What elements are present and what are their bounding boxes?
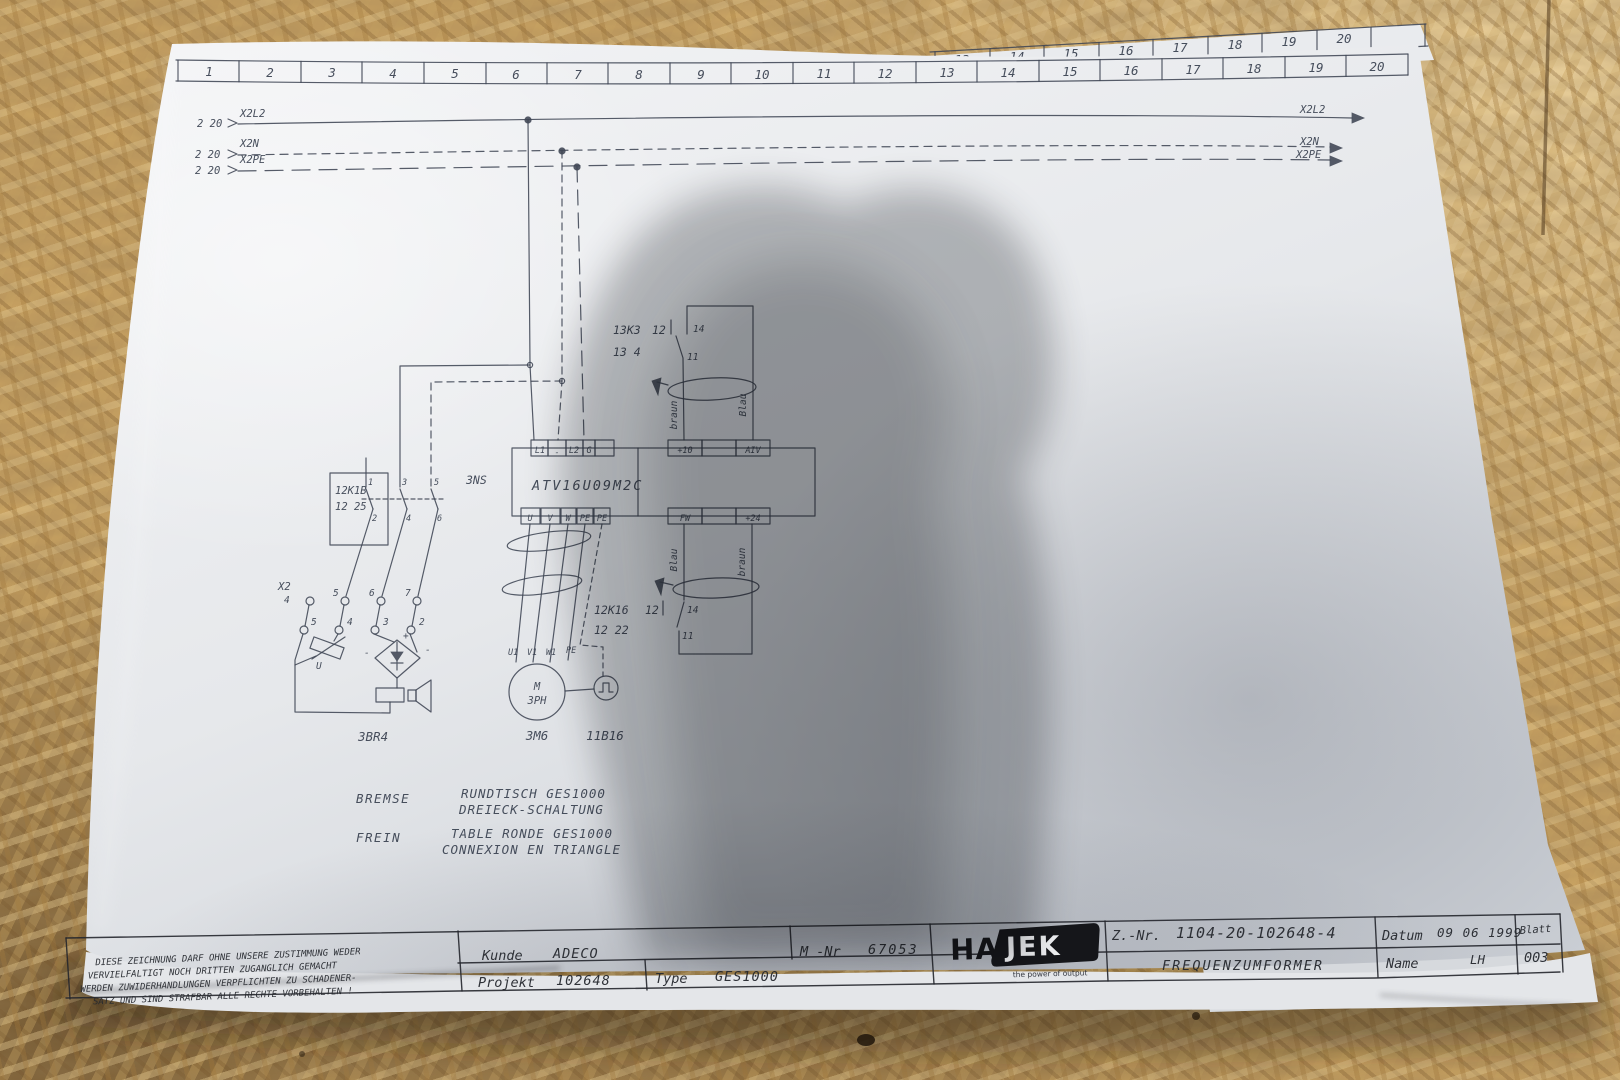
bus-ref: 2 20 <box>197 118 222 130</box>
ruler-cell: 14 <box>1000 65 1015 80</box>
ruler-cell: 17 <box>1185 62 1201 77</box>
back-ruler-cell: 17 <box>1172 40 1188 55</box>
bus-label-right: X2L2 <box>1299 104 1325 116</box>
ruler-cell: 15 <box>1062 64 1077 79</box>
bus-label: X2L2 <box>239 108 265 120</box>
ruler-cell: 11 <box>816 66 831 81</box>
ruler-cell: 2 <box>266 65 274 80</box>
strip-pin: 4 <box>347 617 353 628</box>
ruler-cell: 8 <box>635 67 643 82</box>
caption-de-label: BREMSE <box>356 791 410 806</box>
datum-label: Datum <box>1381 928 1423 944</box>
caption-de-line2: DREIECK-SCHALTUNG <box>458 802 604 817</box>
bus-label-right: X2PE <box>1295 149 1322 161</box>
type-label: Type <box>655 971 688 987</box>
hand-shadow <box>561 186 1055 962</box>
plus-sign: + <box>403 631 409 642</box>
contactor-id: 12K1B <box>335 485 367 497</box>
motor-m: M <box>533 681 541 693</box>
blatt-label: Blatt <box>1519 923 1551 937</box>
caption-fr-line2: CONNEXION EN TRIANGLE <box>442 842 621 857</box>
strip-pin: 5 <box>311 617 317 628</box>
photo-scene: 13 14 15 16 17 18 19 20 1 2 3 4 5 6 7 8 … <box>0 0 1620 1080</box>
datum-value: 09 06 1999 <box>1437 925 1522 940</box>
ruler-cell: 6 <box>512 67 520 82</box>
pin-label: 2 <box>372 514 377 524</box>
motor-id: 3M6 <box>525 728 549 743</box>
drawing-title: FREQUENZUMFORMER <box>1162 958 1324 974</box>
strip-pin: 7 <box>405 588 411 599</box>
pin-label: 5 <box>434 478 439 488</box>
minus-sign: - <box>364 648 370 659</box>
ruler-cell: 13 <box>939 65 954 80</box>
minus-sign: - <box>425 645 431 656</box>
projekt-label: Projekt <box>478 975 535 991</box>
strip-pin: 2 <box>419 617 425 628</box>
kunde-label: Kunde <box>481 948 523 964</box>
bus-label-right: X2N <box>1299 136 1320 148</box>
ruler-cell: 19 <box>1308 60 1323 75</box>
motor-phases: 3PH <box>527 695 548 707</box>
drive-id: 3NS <box>465 473 487 487</box>
back-ruler-cell: 18 <box>1227 37 1242 52</box>
back-ruler-cell: 16 <box>1118 43 1133 58</box>
strip-pin: 5 <box>333 588 339 599</box>
caption-fr-label: FREIN <box>356 830 401 845</box>
kunde-value: ADECO <box>552 946 599 962</box>
bus-ref: 2 20 <box>195 149 220 161</box>
brake-label: 3BR4 <box>357 729 388 744</box>
varistor-label: U <box>316 661 322 672</box>
contactor-xref: 12 25 <box>335 501 367 513</box>
motor-terminal: V1 <box>527 648 537 658</box>
name-value: LH <box>1470 952 1486 967</box>
znr-value: 1104-20-102648-4 <box>1176 924 1337 942</box>
pin-label: 3 <box>401 478 407 488</box>
back-ruler-cell: 20 <box>1336 31 1351 46</box>
ruler-cell: 12 <box>877 66 892 81</box>
ruler-cell: 5 <box>451 66 459 81</box>
ruler-cell: 4 <box>389 66 397 81</box>
ruler-cell: 3 <box>327 65 336 80</box>
ruler-cell: 10 <box>754 67 769 82</box>
terminal-label: - <box>554 448 559 458</box>
terminal-label: V <box>547 514 553 524</box>
terminal-label: U <box>527 514 533 524</box>
ruler-cell: 1 <box>205 64 213 79</box>
terminal-label: L1 <box>535 446 545 456</box>
ruler-cell: 16 <box>1123 63 1138 78</box>
pin-label: 6 <box>437 514 442 524</box>
strip-pin: 4 <box>284 595 290 606</box>
bus-label: X2N <box>239 138 260 150</box>
ruler-cell: 20 <box>1369 59 1384 74</box>
strip-id: X2 <box>277 581 291 593</box>
back-ruler-cell: 19 <box>1281 34 1296 49</box>
caption-de-line1: RUNDTISCH GES1000 <box>461 786 606 801</box>
pin-label: 1 <box>368 478 373 488</box>
blatt-value: 003 <box>1524 950 1548 966</box>
strip-pin: 6 <box>369 588 375 599</box>
type-value: GES1000 <box>715 969 779 985</box>
projekt-value: 102648 <box>556 973 611 989</box>
motor-terminal: U1 <box>508 648 518 658</box>
bus-label: X2PE <box>239 154 266 166</box>
strip-pin: 3 <box>382 617 389 628</box>
motor-terminal: W1 <box>546 648 556 658</box>
znr-label: Z.-Nr. <box>1111 928 1161 944</box>
ruler-cell: 18 <box>1246 61 1261 76</box>
ruler-cell: 9 <box>697 67 705 82</box>
pin-label: 4 <box>406 514 411 524</box>
bus-ref: 2 20 <box>195 165 220 177</box>
ruler-cell: 7 <box>574 67 582 82</box>
name-label: Name <box>1385 956 1419 972</box>
caption-fr-line1: TABLE RONDE GES1000 <box>451 826 613 841</box>
motor-terminal: PE <box>566 646 577 656</box>
